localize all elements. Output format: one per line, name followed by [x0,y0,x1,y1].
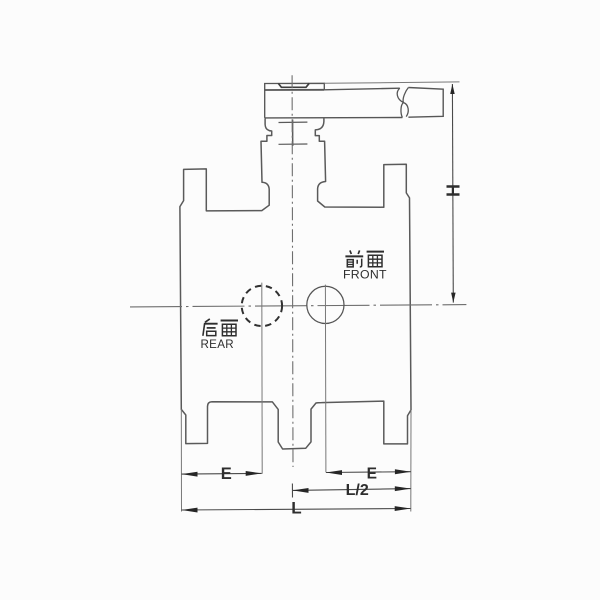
svg-text:E: E [221,465,232,483]
svg-text:L/2: L/2 [346,482,369,499]
svg-text:FRONT: FRONT [343,268,387,282]
svg-text:REAR: REAR [201,338,234,351]
svg-text:H: H [444,184,464,197]
svg-text:L: L [291,499,301,518]
svg-text:E: E [367,465,377,482]
